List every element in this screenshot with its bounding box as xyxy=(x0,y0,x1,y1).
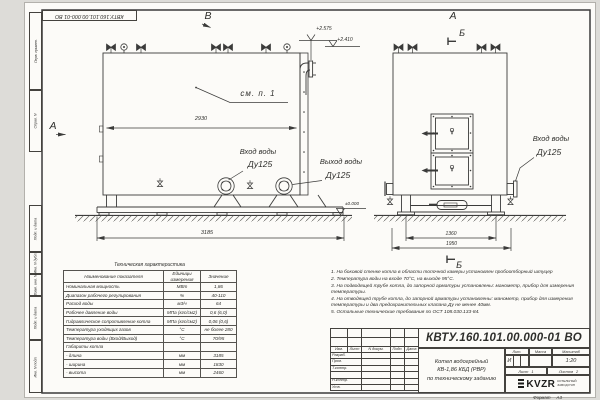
sheet-cell: Лист 1 xyxy=(505,367,547,375)
table-row: - длинамм3185 xyxy=(64,351,237,360)
tech-col-name: Наименование показателя xyxy=(64,271,164,283)
mass-value-cell xyxy=(529,355,552,367)
scale-value: 1:20 xyxy=(552,355,590,367)
lit-value: И xyxy=(506,356,513,366)
elevation-pipe-top: +2.575 xyxy=(316,27,331,32)
mass-header: Масса xyxy=(529,348,552,355)
section-mark-b-top: Б xyxy=(459,29,465,38)
note-2: 2. Температура воды на входе 70°С, на вы… xyxy=(331,277,588,283)
table-row: Номинальная мощностьМВт1,86 xyxy=(64,283,237,292)
table-row: Температура уходящих газов°Сне более 280 xyxy=(64,325,237,334)
outlet-side-label: Выход воды xyxy=(320,158,362,166)
view-mark-v: В xyxy=(204,11,211,22)
table-row: Рабочее давление водыМПа (кгс/см2)0,6 (6… xyxy=(64,308,237,317)
tech-characteristics: Техническая характеристика Наименование … xyxy=(63,262,236,378)
product-title: Котел водогрейный КВ-1,86 КБД (РВР) по т… xyxy=(418,348,505,393)
table-row: - высотамм2460 xyxy=(64,368,237,377)
note-3: 3. На подводящей трубе котла, до запорно… xyxy=(331,284,588,297)
lit-header: Лит. xyxy=(505,348,529,355)
frame-label-inv-podl: Инв. N подл. xyxy=(29,340,42,393)
inlet-side-label: Вход воды xyxy=(240,148,276,156)
section-mark-b-bottom: Б xyxy=(456,261,462,270)
view-mark-a-top: А xyxy=(449,11,456,22)
doc-number-top-box: КВТУ.160.101.00.000-01 ВО xyxy=(42,10,137,21)
note-4: 4. На отводящей трубе котла, до запорной… xyxy=(331,297,588,310)
manufacturer-logo: KVZR КОТЕЛЬНЫЙ ЗАВОД РЭП xyxy=(505,375,590,393)
table-row: Габариты котла xyxy=(64,343,237,352)
sheets-cell: Листов 2 xyxy=(547,367,590,375)
technical-notes: 1. На боковой стенке котла в области топ… xyxy=(331,270,588,317)
doc-number-top: КВТУ.160.101.00.000-01 ВО xyxy=(55,13,124,19)
table-row: Расход водым3/ч64 xyxy=(64,300,237,309)
inlet-front-dn: Ду125 xyxy=(537,148,562,157)
logo-bars-icon xyxy=(518,379,524,390)
dim-body-length: 2930 xyxy=(195,117,207,123)
inlet-front-label: Вход воды xyxy=(533,135,569,143)
note-1: 1. На боковой стенке котла в области топ… xyxy=(331,270,588,276)
table-row: Температура воды (Вход/Выход)°С70/95 xyxy=(64,334,237,343)
view-mark-a-left: А xyxy=(49,121,56,132)
tech-table: Наименование показателя Единицы измерени… xyxy=(63,270,237,378)
tech-col-units: Единицы измерения xyxy=(164,271,201,283)
format-note: Формат А3 xyxy=(505,395,590,400)
drawing-sheet: Перв. примен. Справ. N Подп. и дата Инв.… xyxy=(0,0,600,400)
row-utv: Утв. xyxy=(331,384,362,390)
dim-total-width: 1950 xyxy=(446,242,457,247)
elevation-ground: ±0.000 xyxy=(345,202,359,207)
tech-table-title: Техническая характеристика xyxy=(63,262,236,268)
tech-col-value: Значение xyxy=(201,271,237,283)
frame-label-podp-data-1: Подп. и дата xyxy=(29,205,42,252)
frame-label-perv-primen: Перв. примен. xyxy=(29,12,42,90)
inlet-side-dn: Ду125 xyxy=(248,160,273,169)
frame-label-vzam-inv: Взам. инв. N xyxy=(29,274,42,296)
logo-name: KVZR xyxy=(526,379,555,390)
table-row: Гидравлическое сопротивление котлаМПа (к… xyxy=(64,317,237,326)
lit-value-cell: И xyxy=(505,355,529,367)
see-note-label: см. п. 1 xyxy=(240,90,275,98)
outlet-side-dn: Ду125 xyxy=(326,171,351,180)
dim-total-length: 3185 xyxy=(201,231,213,237)
table-row: Диапазон рабочего регулирования%40-110 xyxy=(64,291,237,300)
scale-header: Масштаб xyxy=(552,348,590,355)
revision-table: Изм. Лист N докум. Подп. Дата Разраб. Пр… xyxy=(330,328,419,391)
frame-label-podp-data-2: Подп. и дата xyxy=(29,296,42,340)
table-row: - ширинамм1830 xyxy=(64,360,237,369)
doc-number: КВТУ.160.101.00.000-01 ВО xyxy=(418,328,590,348)
dim-support-width: 1360 xyxy=(445,232,456,237)
note-5: 5. Остальные технические требования по О… xyxy=(331,310,588,316)
frame-label-sprav-n: Справ. N xyxy=(29,90,42,152)
elevation-outlet: +2.410 xyxy=(337,38,352,43)
frame-label-inv-dubl: Инв. N дубл. xyxy=(29,252,42,274)
